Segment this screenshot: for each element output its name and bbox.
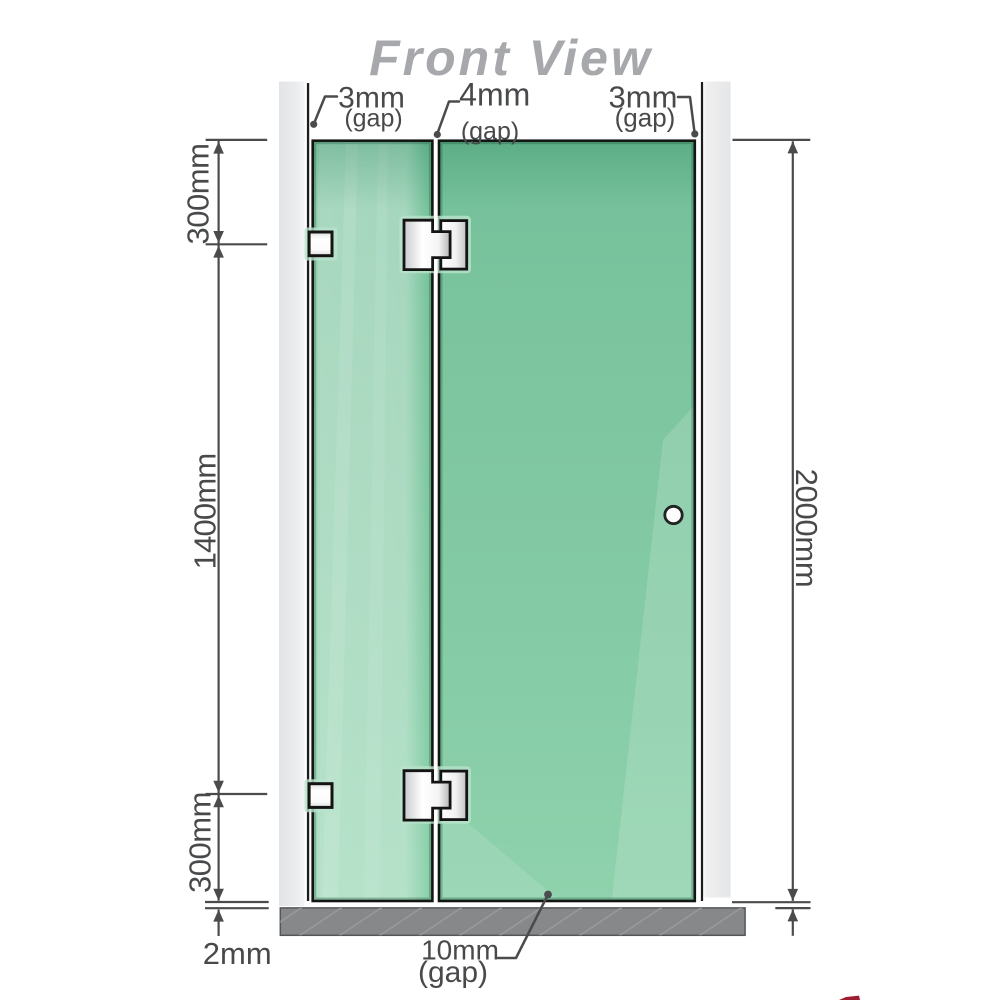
svg-text:(gap): (gap) <box>344 105 402 133</box>
svg-text:(gap): (gap) <box>615 103 676 133</box>
svg-text:(gap): (gap) <box>461 118 519 146</box>
svg-text:4mm: 4mm <box>459 77 530 113</box>
svg-text:300mm: 300mm <box>181 144 216 245</box>
svg-text:2000mm: 2000mm <box>789 469 824 588</box>
svg-text:(gap): (gap) <box>418 956 488 989</box>
svg-text:1400mm: 1400mm <box>188 454 223 570</box>
svg-text:300mm: 300mm <box>183 792 218 893</box>
svg-text:2mm: 2mm <box>203 936 272 971</box>
